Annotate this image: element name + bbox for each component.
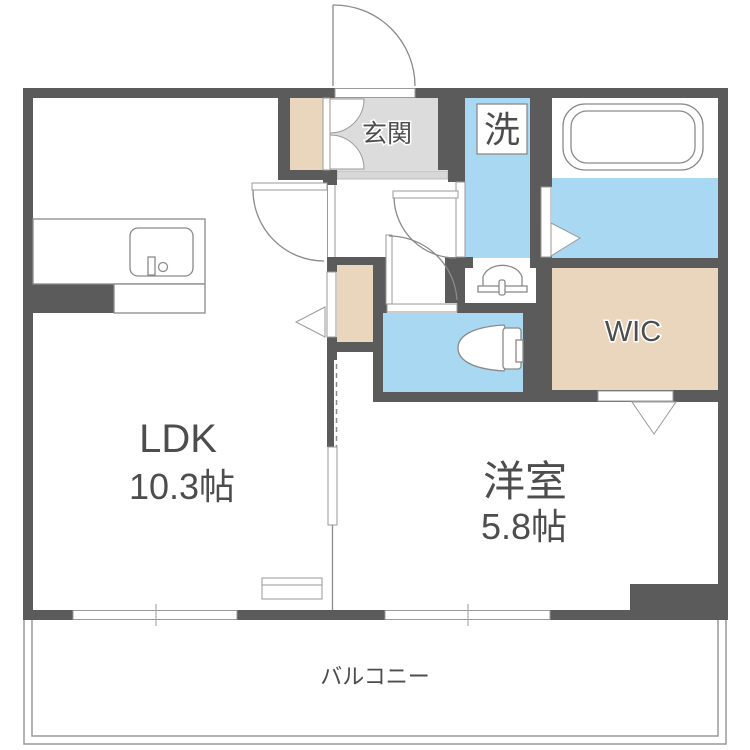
washroom-door-leaf	[393, 191, 458, 198]
sliding-door-leaf	[328, 447, 337, 525]
ldk-window	[73, 611, 237, 620]
wall-closet-top	[327, 257, 383, 265]
floorplan-drawing: LDK 10.3帖 洋室 5.8帖 玄関 洗 WIC バルコニー	[0, 0, 750, 750]
ldk-label: LDK	[139, 417, 217, 461]
wall-basin-right	[536, 258, 546, 303]
wall-left	[23, 88, 33, 620]
wall-basin-bottom	[457, 303, 540, 313]
kitchen-drain	[159, 263, 168, 272]
wic-folding-door-arrow	[632, 402, 676, 434]
wall-entrance-left	[278, 88, 290, 180]
wall-laundry-bath-mid	[530, 187, 541, 258]
entrance-door-sill	[335, 89, 415, 98]
closet-floor	[337, 265, 373, 342]
counter-box	[262, 578, 322, 599]
washbasin-faucet	[499, 280, 505, 295]
bathroom-doorway	[541, 187, 551, 257]
ldk-door-swing-arc	[253, 190, 324, 261]
wall-entrance-laundry	[438, 88, 465, 170]
entrance-step	[337, 171, 448, 179]
wall-closet-door-stub-bottom	[327, 337, 337, 360]
entrance-door-swing-arc	[333, 5, 415, 86]
bathtub-symbol	[563, 104, 703, 170]
wall-laundry-bath-top	[530, 88, 552, 187]
shoe-cabinet-door	[323, 98, 330, 170]
pipe-space-block	[630, 584, 728, 620]
floorplan-page: LDK 10.3帖 洋室 5.8帖 玄関 洗 WIC バルコニー	[0, 0, 750, 750]
wall-toilet-right	[523, 303, 540, 402]
bedroom-label: 洋室	[483, 458, 567, 505]
wall-toilet-bottom	[373, 392, 540, 402]
balcony-label: バルコニー	[320, 664, 430, 689]
wall-partition-solid	[327, 360, 334, 447]
laundry-label: 洗	[484, 109, 520, 150]
wall-bath-wic	[540, 258, 728, 268]
wall-closet-door-stub-top	[327, 265, 337, 272]
wall-hall-basin	[445, 257, 465, 303]
toilet-doorway	[387, 304, 457, 312]
toilet-door-leaf	[386, 235, 392, 304]
closet-doorway	[327, 272, 336, 337]
entrance-label: 玄関	[362, 120, 412, 148]
wall-closet-right	[373, 265, 383, 352]
wic-label: WIC	[605, 316, 661, 348]
wic-doorway	[598, 391, 673, 401]
kitchen-counter-lower	[114, 284, 205, 313]
ldk-size-label: 10.3帖	[129, 466, 235, 507]
bedroom-size-label: 5.8帖	[481, 506, 567, 547]
shoe-cabinet	[290, 98, 323, 170]
toilet-handle	[516, 340, 523, 362]
ldk-door-leaf	[252, 183, 327, 190]
wall-right	[718, 88, 728, 620]
wall-entrance-laundry-lower	[448, 170, 465, 182]
closet-folding-door-arrow	[296, 307, 325, 337]
wall-kitchen-base	[23, 284, 114, 313]
kitchen-faucet	[148, 257, 155, 275]
bathroom-floor	[552, 178, 718, 258]
washroom-door-swing-arc	[394, 198, 456, 258]
